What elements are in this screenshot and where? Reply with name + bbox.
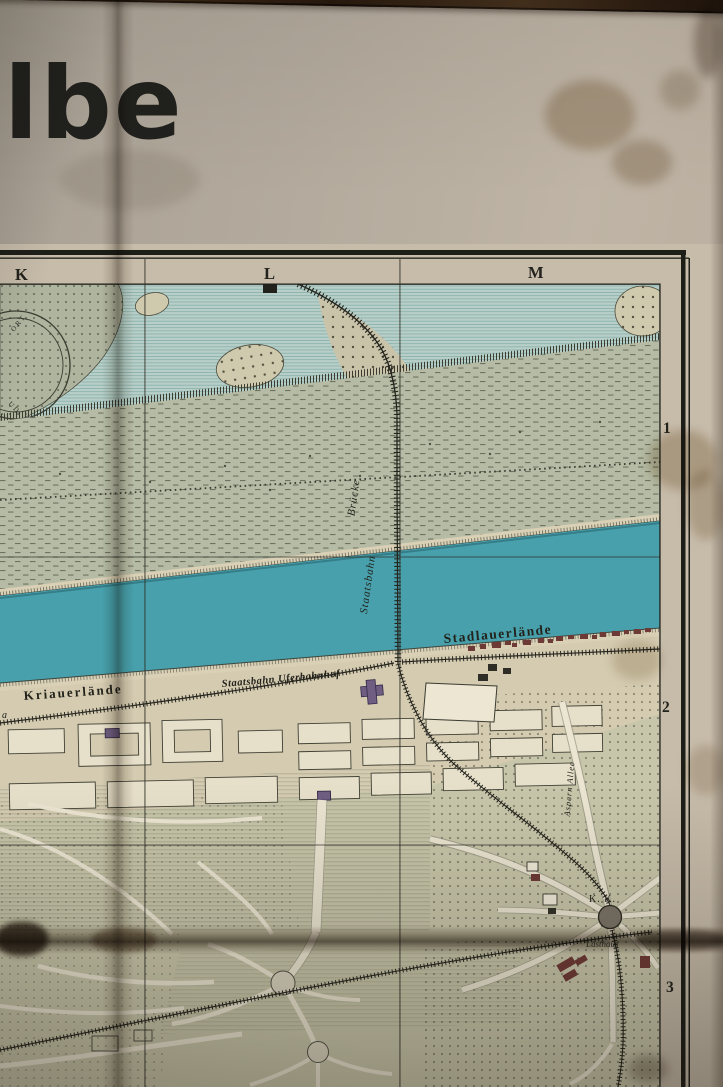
label-kk: K. K. — [589, 894, 616, 905]
black-mark — [263, 284, 277, 293]
grid-row-label-3: 3 — [666, 979, 674, 996]
photo-of-map: lbe — [0, 0, 723, 1087]
grid-column-label-L: L — [264, 264, 275, 283]
paper-stain — [612, 140, 672, 185]
map-content: ORT UD — [0, 284, 671, 1087]
paper-stain — [60, 150, 200, 210]
paper-stain — [612, 640, 662, 680]
paper-right-edge-shadow — [710, 0, 723, 1087]
fold-damage-spot — [0, 922, 48, 956]
paper-stain — [545, 80, 635, 150]
purple-building — [317, 791, 330, 800]
large-building — [423, 683, 497, 722]
fold-damage-spot — [92, 928, 156, 952]
label-edge-fragment: a — [2, 710, 7, 721]
rondeau — [308, 1042, 329, 1063]
paper-stain — [628, 1055, 668, 1083]
paper-stain — [660, 70, 700, 110]
grid-row-label-2: 2 — [662, 699, 670, 716]
grid-column-label-M: M — [528, 263, 544, 282]
grid-column-label-K: K — [15, 265, 28, 284]
map-title-fragment: lbe — [4, 54, 184, 154]
